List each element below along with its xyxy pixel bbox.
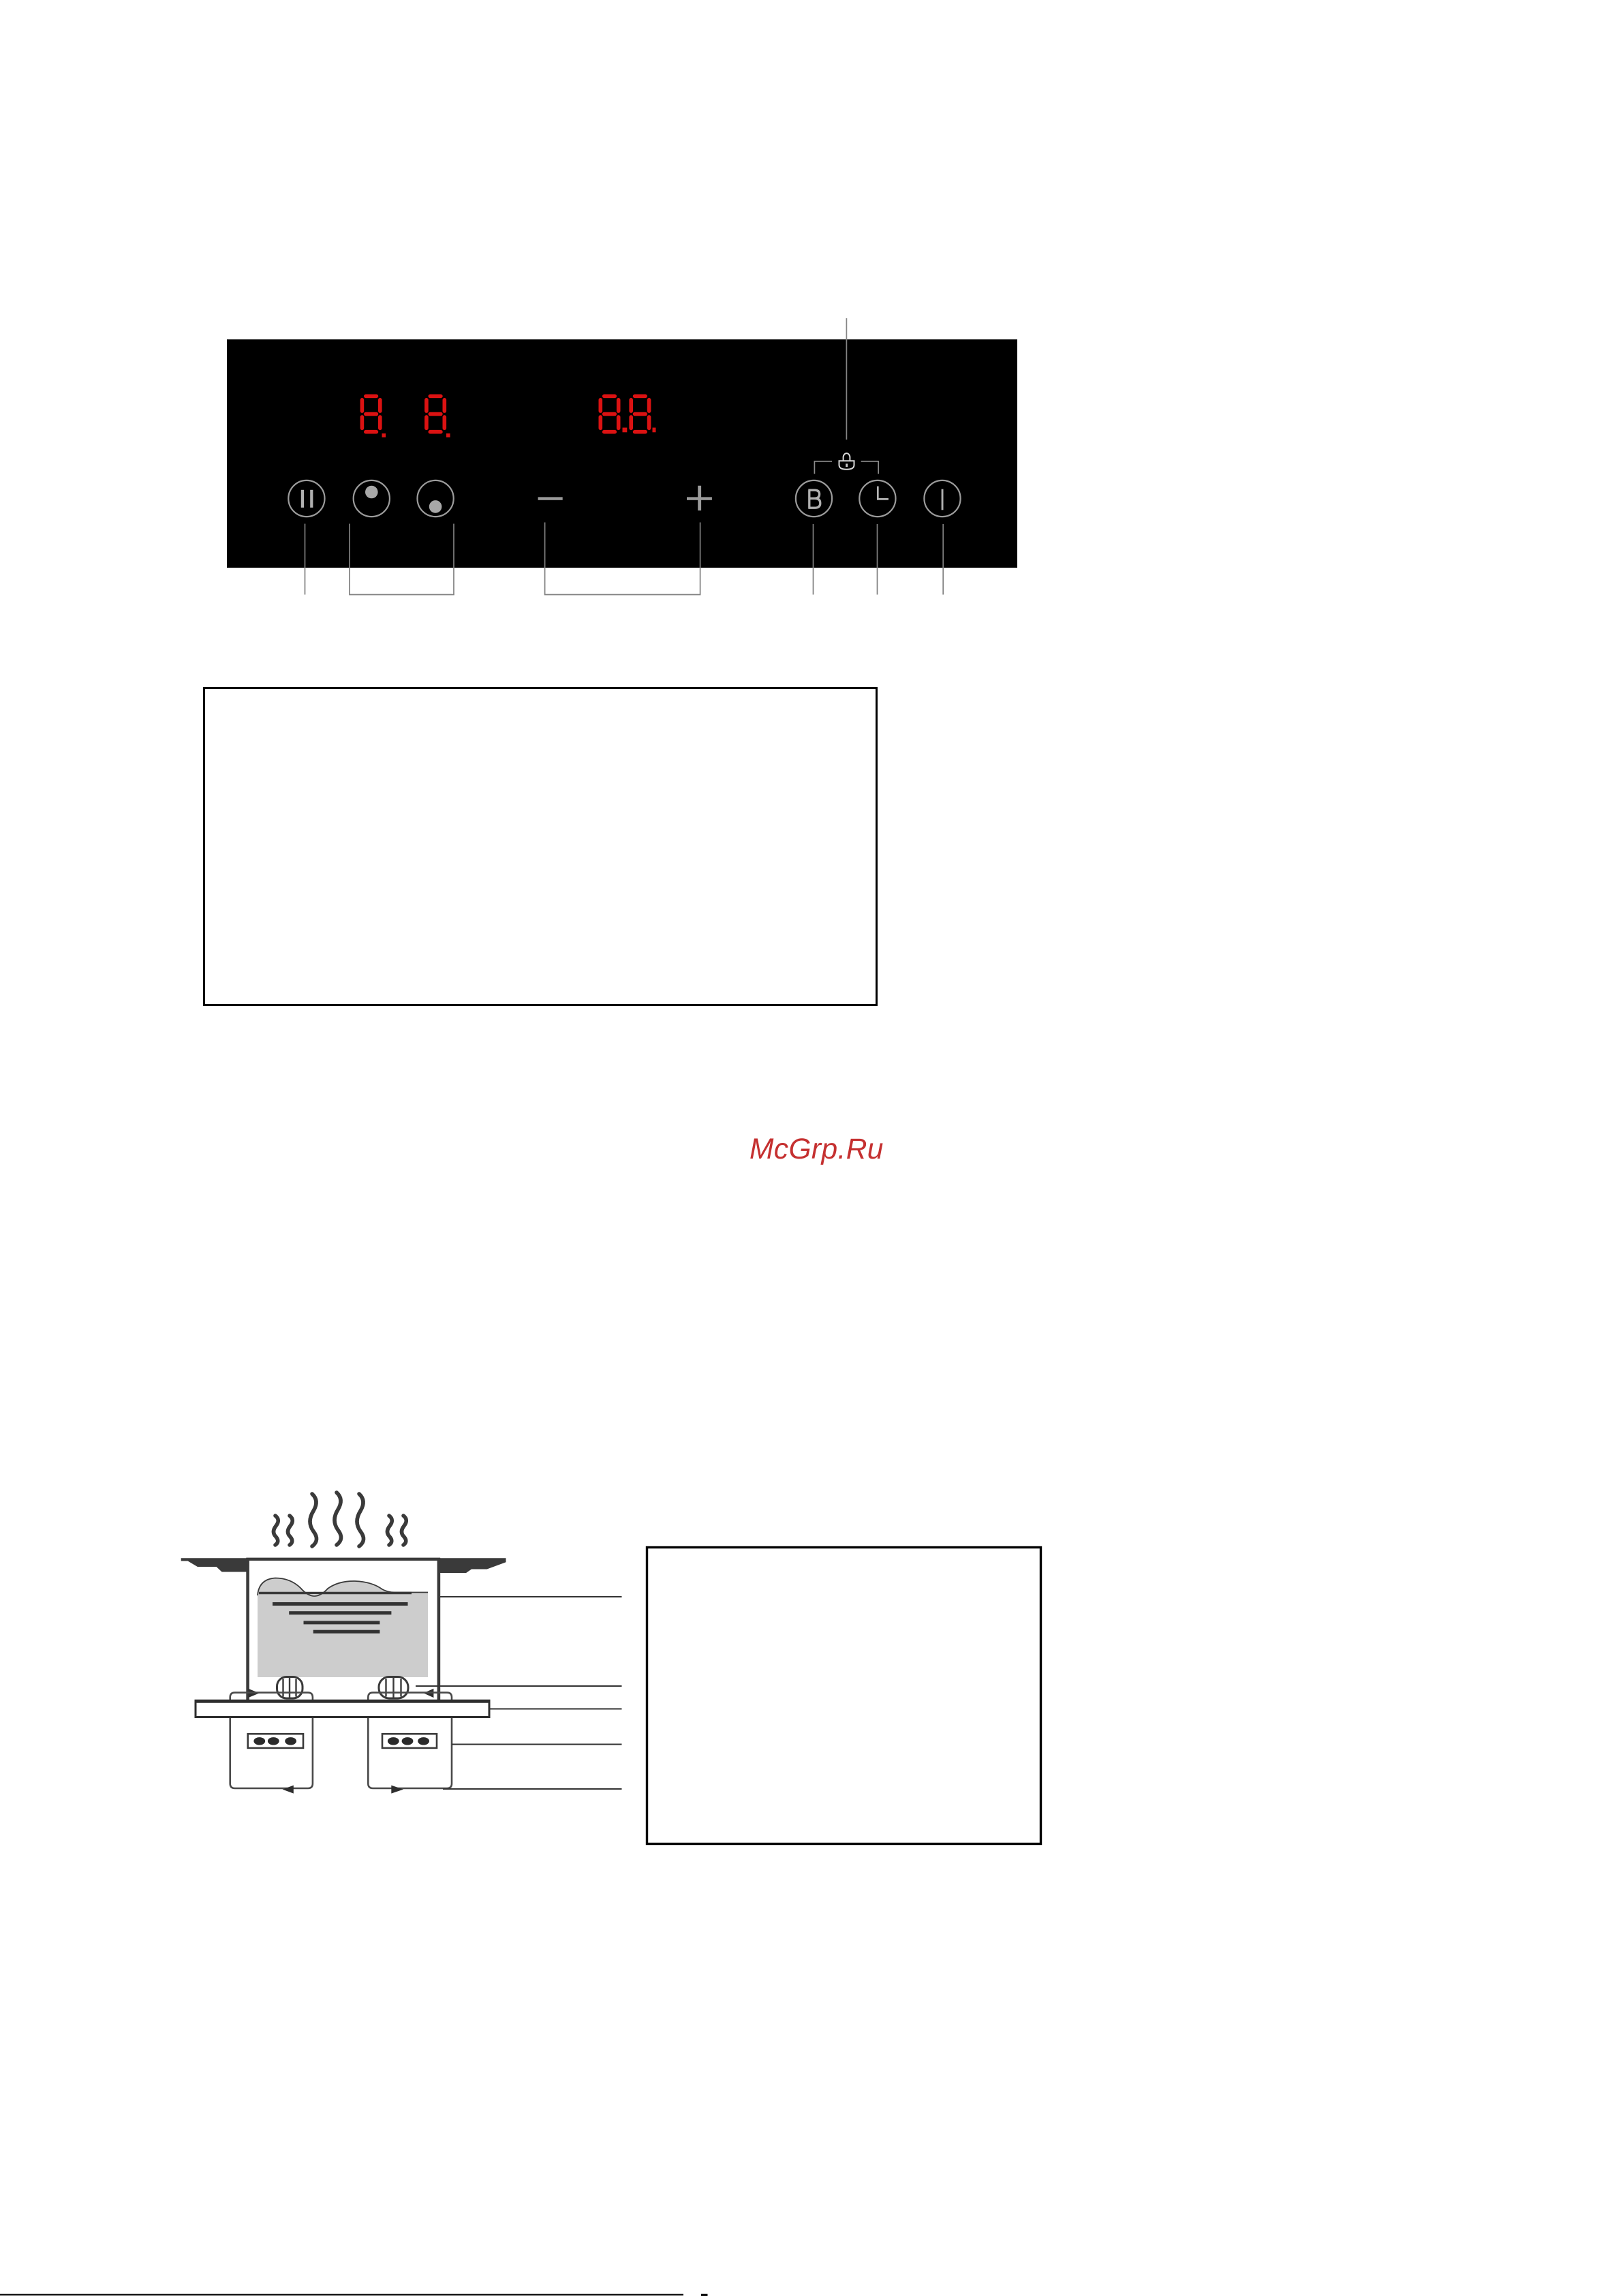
svg-text:McGrp.Ru: McGrp.Ru: [749, 1133, 884, 1165]
